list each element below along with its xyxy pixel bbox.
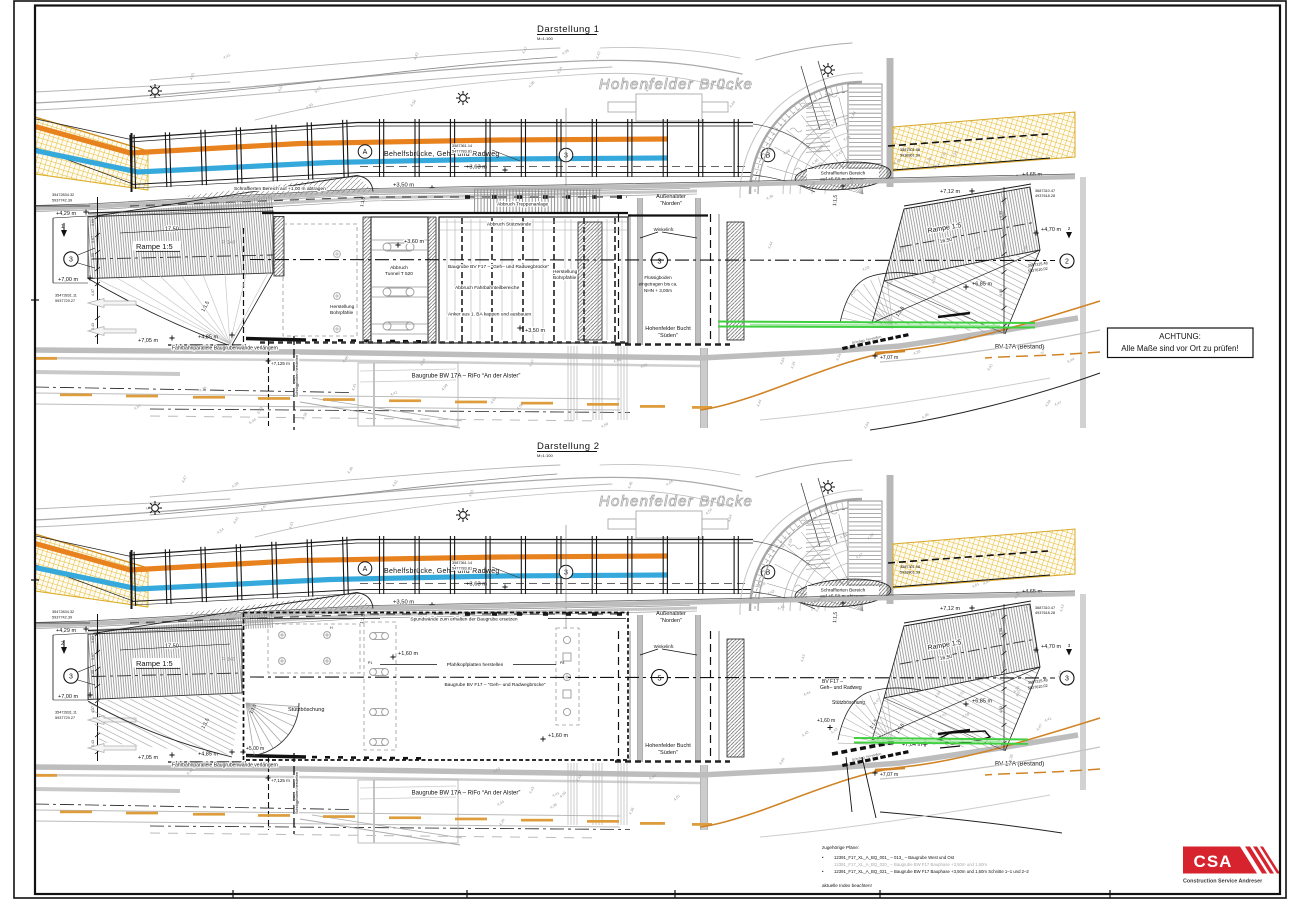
svg-text:A: A [363,566,368,573]
svg-text:1,00: 1,00 [91,670,95,677]
svg-text:+1,60 m: +1,60 m [548,733,568,739]
svg-text:Bohrpfähle: Bohrpfähle [553,275,577,281]
svg-text:+1,60 m: +1,60 m [398,651,418,657]
svg-text:Anker aus 1. BA kappen und aus: Anker aus 1. BA kappen und ausbauen [448,312,532,318]
svg-text:3,67: 3,67 [91,236,95,243]
svg-text:4,99: 4,99 [999,211,1003,218]
svg-text:2: 2 [1065,259,1069,266]
svg-text:Schraffierten Bereich auf +1,0: Schraffierten Bereich auf +1,00 m abtrag… [234,186,326,192]
svg-text:35472834.32: 35472834.32 [52,193,74,197]
svg-text:4,37: 4,37 [91,289,95,296]
svg-text:Fahrbahnparallele Baugrubenwän: Fahrbahnparallele Baugrubenwände verläng… [172,346,278,352]
svg-text:35472834.32: 35472834.32 [52,610,74,614]
svg-text:4,99: 4,99 [999,628,1003,635]
svg-text:+7,07 m: +7,07 m [880,355,898,361]
svg-text:+7,05 m: +7,05 m [138,338,158,344]
svg-text:Außenalster: Außenalster [656,194,686,200]
svg-text:4,93: 4,93 [999,289,1003,296]
svg-text:3: 3 [69,257,73,264]
svg-text:3: 3 [69,674,73,681]
svg-text:Baugrube BW 17A – RiFo “A: Baugrube BW 17A – RiFo “An der Alster” [412,791,521,797]
svg-text:P1: P1 [368,661,372,665]
svg-text:Baugrube BV F17 – “Geh– u: Baugrube BV F17 – “Geh– und Radwegbrücke… [448,264,549,270]
svg-text:3,67: 3,67 [91,653,95,660]
svg-text:+6,85 m: +6,85 m [972,699,992,705]
svg-text:+4,29 m: +4,29 m [56,211,76,217]
svg-text:+7,00 m: +7,00 m [58,277,78,283]
svg-text:3587301.08: 3587301.08 [900,565,920,569]
svg-text:3687310.47: 3687310.47 [1035,606,1055,610]
svg-text:NHN + 3,00m: NHN + 3,00m [644,288,672,293]
svg-text:+7,00 m: +7,00 m [58,694,78,700]
svg-text:5937729.27: 5937729.27 [55,299,75,303]
svg-text:Schraffierten Bereich: Schraffierten Bereich [821,588,866,594]
svg-text:Hohenfelder Brücke: Hohenfelder Brücke [599,493,753,510]
svg-text:A: A [363,149,368,156]
svg-text:+7,12 m: +7,12 m [940,189,960,195]
svg-text:M=1:100: M=1:100 [537,453,553,458]
svg-text:Fahrbahnparallele Baugrubenwän: Fahrbahnparallele Baugrubenwände verläng… [172,763,278,769]
svg-text:3: 3 [657,257,661,266]
svg-text:17,50: 17,50 [165,227,179,233]
svg-text:+6,85 m: +6,85 m [972,282,992,288]
svg-text:Abbruch Stützwände: Abbruch Stützwände [487,222,532,228]
svg-text:5938801.39: 5938801.39 [900,571,920,575]
svg-text:“Süden”: “Süden” [658,333,678,339]
svg-text:M=1:100: M=1:100 [537,36,553,41]
svg-text:ACHTUNG:: ACHTUNG: [1159,332,1201,341]
svg-text:Stützböschung: Stützböschung [832,700,865,706]
svg-text:CSA: CSA [1194,852,1233,871]
svg-text:Abbruch Treppenanlage: Abbruch Treppenanlage [497,202,549,208]
svg-text:35472831.11: 35472831.11 [55,294,77,298]
svg-text:+4,85 m: +4,85 m [198,335,218,341]
svg-text:Behelfsbrücke, Geh– und Radweg: Behelfsbrücke, Geh– und Radweg [384,151,500,158]
svg-text:4937618.28: 4937618.28 [1035,194,1055,198]
svg-text:3,63: 3,63 [91,636,95,643]
svg-text:H: H [330,626,333,630]
svg-text:+3,60 m: +3,60 m [404,239,424,245]
svg-text:+4,70 m: +4,70 m [1041,644,1061,650]
svg-text:Hohenfelder Brücke: Hohenfelder Brücke [599,76,753,93]
svg-text:Hohenfelder Bucht: Hohenfelder Bucht [645,743,691,749]
svg-text:4,93: 4,93 [999,706,1003,713]
svg-text:Bohrpfähle: Bohrpfähle [330,310,354,316]
svg-text:+4,70 m: +4,70 m [1041,227,1061,233]
svg-text:Schrägpfosten herstellen: Schrägpfosten herstellen [295,772,299,814]
svg-text:+3,50 m: +3,50 m [525,328,545,334]
svg-text:Schrägpfosten herstellen: Schrägpfosten herstellen [295,355,299,397]
svg-text:+3,63 m: +3,63 m [466,582,487,588]
svg-text:aktuelle Index beachten!: aktuelle Index beachten! [822,883,872,888]
svg-text:+4,29 m: +4,29 m [56,628,76,634]
svg-text:17,50: 17,50 [165,644,179,650]
svg-text:3687310.47: 3687310.47 [1035,189,1055,193]
svg-text:5477783.81: 5477783.81 [452,150,472,154]
svg-text:1:1,5: 1:1,5 [832,611,839,623]
svg-text:5477783.81: 5477783.81 [452,567,472,571]
svg-text:2: 2 [61,641,64,647]
svg-text:Schraffierten Bereich: Schraffierten Bereich [821,171,866,177]
svg-text:Pfahlkopfplatten herstellen: Pfahlkopfplatten herstellen [447,662,504,668]
svg-text:+7,07 m: +7,07 m [880,772,898,778]
svg-text:12391_F17_XL_A_BQ_001_ – 013: 12391_F17_XL_A_BQ_001_ – 013_ – Baugrube… [834,855,955,860]
svg-text:+3,63 m: +3,63 m [466,165,487,171]
svg-text:Baugrube BW 17A – RiFo “A: Baugrube BW 17A – RiFo “An der Alster” [412,374,521,380]
svg-text:Darstellung 2: Darstellung 2 [537,441,599,452]
svg-text:Rampe 1:5: Rampe 1:5 [136,659,173,668]
svg-text:Herstellung: Herstellung [330,304,355,310]
svg-text:Stützböschung: Stützböschung [288,707,324,713]
svg-text:“Süden”: “Süden” [658,750,678,756]
svg-text:4937618.28: 4937618.28 [1035,611,1055,615]
svg-text:Flüssigboden: Flüssigboden [644,275,672,280]
svg-text:Abbruch: Abbruch [390,265,408,271]
svg-text:+7,12 m: +7,12 m [940,606,960,612]
svg-text:3587361.14: 3587361.14 [452,144,472,148]
svg-text:Hohenfelder Bucht: Hohenfelder Bucht [645,326,691,332]
svg-text:eingetragen bis ca.: eingetragen bis ca. [639,282,678,287]
svg-text:12391_F17_XL_A_BQ_020_ – Bau: 12391_F17_XL_A_BQ_020_ – Baugrube BW F17… [834,862,987,867]
svg-text:+7,125 m: +7,125 m [271,778,290,783]
svg-text:R 140: R 140 [222,657,236,663]
svg-text:Tunnel T 520: Tunnel T 520 [385,271,413,277]
svg-text:3: 3 [1065,676,1069,683]
svg-text:1: 1 [61,224,64,230]
svg-text:+1,60 m: +1,60 m [817,718,835,724]
svg-text:+7,05 m: +7,05 m [138,755,158,761]
svg-text:+5,00 m: +5,00 m [246,746,264,752]
svg-text:5938801.39: 5938801.39 [900,154,920,158]
svg-text:1:1,5: 1:1,5 [832,194,839,206]
svg-text:5937742.39: 5937742.39 [52,616,72,620]
svg-text:Winkelinfr.: Winkelinfr. [654,227,675,232]
svg-text:Rampe 1:5: Rampe 1:5 [136,242,173,251]
svg-text:Darstellung 1: Darstellung 1 [537,24,599,35]
svg-text:“Norden”: “Norden” [660,201,682,207]
svg-text:5937742.39: 5937742.39 [52,199,72,203]
svg-text:Construction Service Andreser: Construction Service Andreser [1183,879,1263,885]
svg-text:R 140: R 140 [222,240,236,246]
svg-text:Alle Maße sind vor Ort zu prüf: Alle Maße sind vor Ort zu prüfen! [1121,344,1238,353]
svg-text:P8: P8 [560,661,564,665]
svg-text:3587361.14: 3587361.14 [452,561,472,565]
svg-text:Herstellung: Herstellung [553,269,578,275]
svg-text:3,63: 3,63 [91,219,95,226]
svg-text:1,00: 1,00 [91,253,95,260]
svg-text:Außenalster: Außenalster [656,611,686,617]
svg-text:zugehörige Pläne:: zugehörige Pläne: [822,845,859,850]
svg-text:Behelfsbrücke, Geh– und Radweg: Behelfsbrücke, Geh– und Radweg [384,568,500,575]
svg-text:Spundwände zum erhalten der Ba: Spundwände zum erhalten der Baugrube ers… [410,617,518,623]
svg-text:Geh– und Radweg: Geh– und Radweg [820,685,862,691]
svg-text:+7,125 m: +7,125 m [271,361,290,366]
svg-text:Abbruch Fahrbahnteilbereiche: Abbruch Fahrbahnteilbereiche [455,285,520,291]
svg-text:5937729.27: 5937729.27 [55,716,75,720]
svg-text:35472831.11: 35472831.11 [55,711,77,715]
svg-text:“Norden”: “Norden” [660,618,682,624]
svg-text:Baugrube BV F17 – “Geh– u: Baugrube BV F17 – “Geh– und Radwegbrücke… [444,682,545,688]
svg-text:12391_F17_XL_A_BQ_021_ – Bau: 12391_F17_XL_A_BQ_021_ – Baugrube BW F17… [834,869,1029,874]
svg-text:3587301.08: 3587301.08 [900,148,920,152]
svg-text:Winkelinfr.: Winkelinfr. [654,644,675,649]
